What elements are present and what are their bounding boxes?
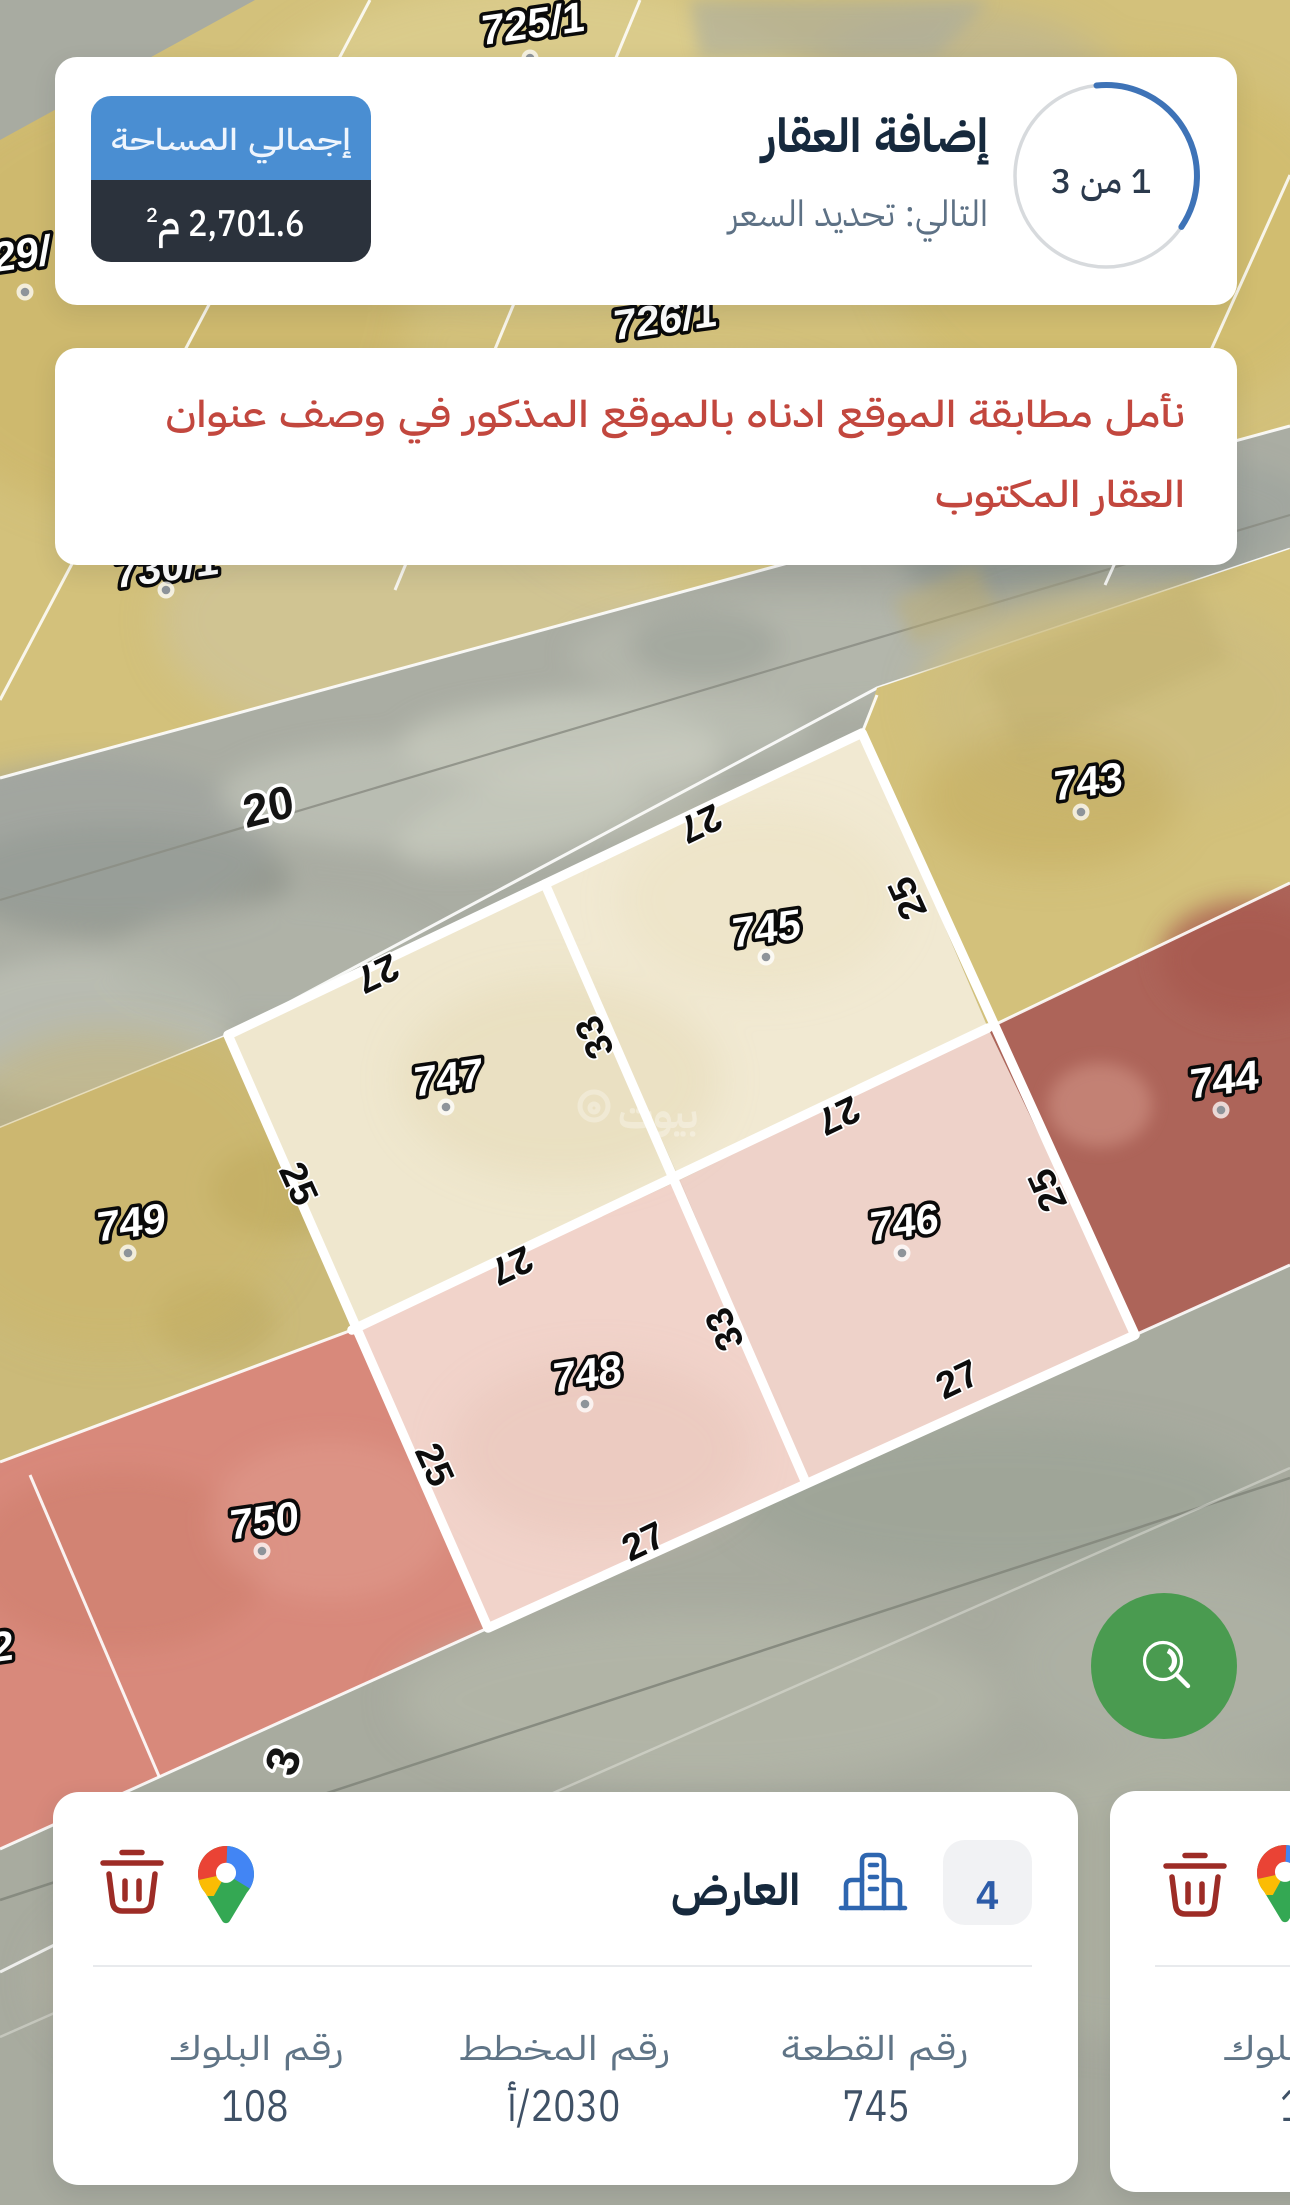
svg-text:743: 743 xyxy=(1053,753,1122,810)
svg-text:746: 746 xyxy=(869,1194,938,1251)
svg-text:749: 749 xyxy=(96,1194,165,1251)
svg-text:745: 745 xyxy=(731,900,800,957)
svg-text:744: 744 xyxy=(1189,1051,1259,1108)
svg-text:748: 748 xyxy=(552,1345,621,1402)
svg-text:750: 750 xyxy=(229,1492,298,1549)
svg-text:2: 2 xyxy=(0,1621,14,1671)
svg-text:747: 747 xyxy=(413,1049,482,1106)
